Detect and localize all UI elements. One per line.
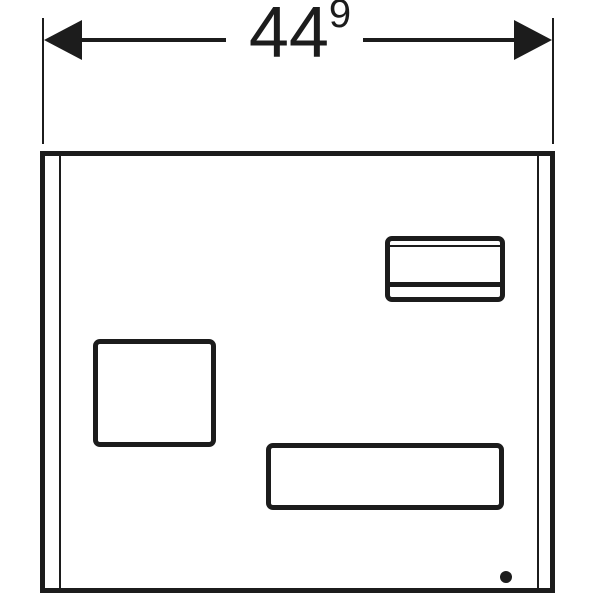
dimension-label: 449	[0, 0, 600, 69]
cutout-bottom-rectangle	[266, 443, 504, 510]
cutout-top-right-divider	[390, 282, 500, 287]
panel-inner-edge-right	[537, 156, 539, 588]
cabinet-panel-outline	[40, 151, 555, 593]
drill-hole-dot-icon	[500, 571, 512, 583]
technical-drawing: 449	[0, 0, 600, 600]
cutout-left-square	[93, 339, 216, 447]
dimension-superscript: 9	[329, 0, 351, 36]
cutout-top-right	[385, 236, 505, 302]
panel-inner-edge-left	[59, 156, 61, 588]
cutout-top-right-inner-line	[390, 245, 500, 247]
dimension-value: 44	[249, 0, 329, 73]
